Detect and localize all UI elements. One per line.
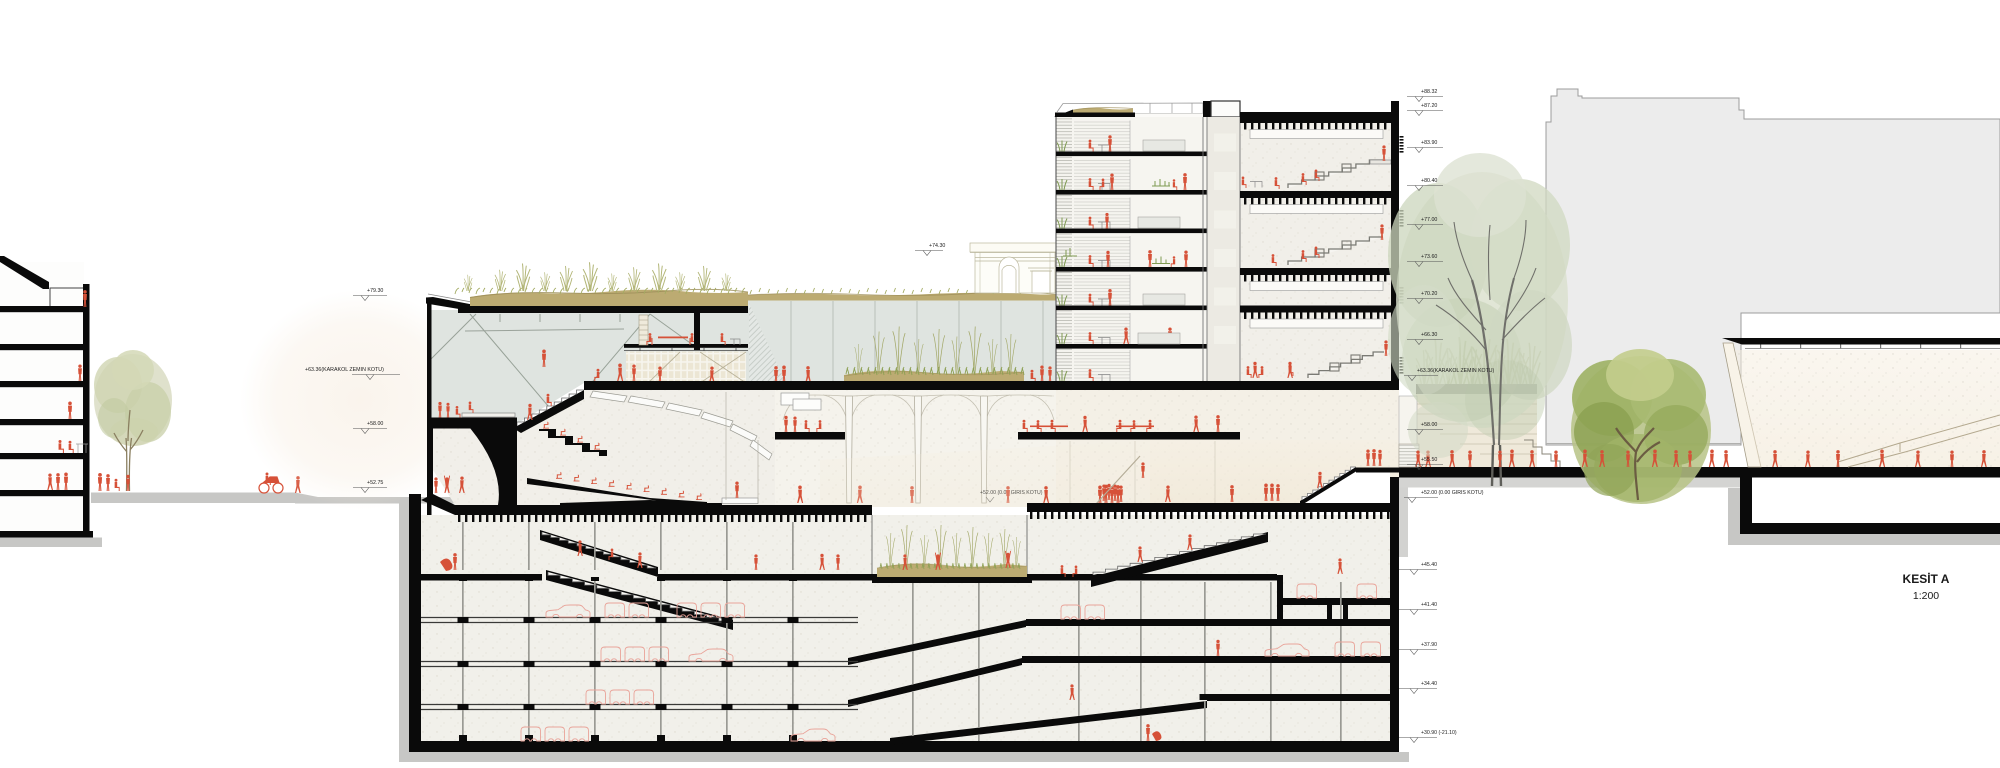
svg-text:+74.30: +74.30 — [929, 243, 945, 249]
svg-text:+45.40: +45.40 — [1421, 562, 1437, 568]
svg-text:KESİT A: KESİT A — [1903, 571, 1950, 586]
svg-text:+37.90: +37.90 — [1421, 642, 1437, 648]
svg-text:+58.00: +58.00 — [1421, 422, 1437, 428]
svg-text:+70.20: +70.20 — [1421, 291, 1437, 297]
svg-text:+80.40: +80.40 — [1421, 178, 1437, 184]
svg-text:+87.20: +87.20 — [1421, 103, 1437, 109]
svg-text:+30.90 (-21.10): +30.90 (-21.10) — [1421, 730, 1457, 736]
svg-text:+41.40: +41.40 — [1421, 602, 1437, 608]
svg-text:+83.90: +83.90 — [1421, 140, 1437, 146]
svg-text:+34.40: +34.40 — [1421, 681, 1437, 687]
svg-text:+79.30: +79.30 — [367, 288, 383, 294]
svg-text:+66.30: +66.30 — [1421, 332, 1437, 338]
svg-text:+52.75: +52.75 — [367, 480, 383, 486]
svg-text:+77.00: +77.00 — [1421, 217, 1437, 223]
svg-text:+73.60: +73.60 — [1421, 254, 1437, 260]
svg-text:+52.00 (0.00 GIRIS KOTU): +52.00 (0.00 GIRIS KOTU) — [1421, 490, 1484, 496]
svg-text:+63.36(KARAKOL ZEMIN KOTU): +63.36(KARAKOL ZEMIN KOTU) — [305, 367, 384, 373]
svg-text:+88.32: +88.32 — [1421, 89, 1437, 95]
svg-text:1:200: 1:200 — [1913, 590, 1939, 602]
svg-text:+63.36(KARAKOL ZEMIN KOTU): +63.36(KARAKOL ZEMIN KOTU) — [1417, 368, 1494, 374]
svg-text:+58.00: +58.00 — [367, 421, 383, 427]
svg-text:+55.50: +55.50 — [1421, 457, 1437, 463]
